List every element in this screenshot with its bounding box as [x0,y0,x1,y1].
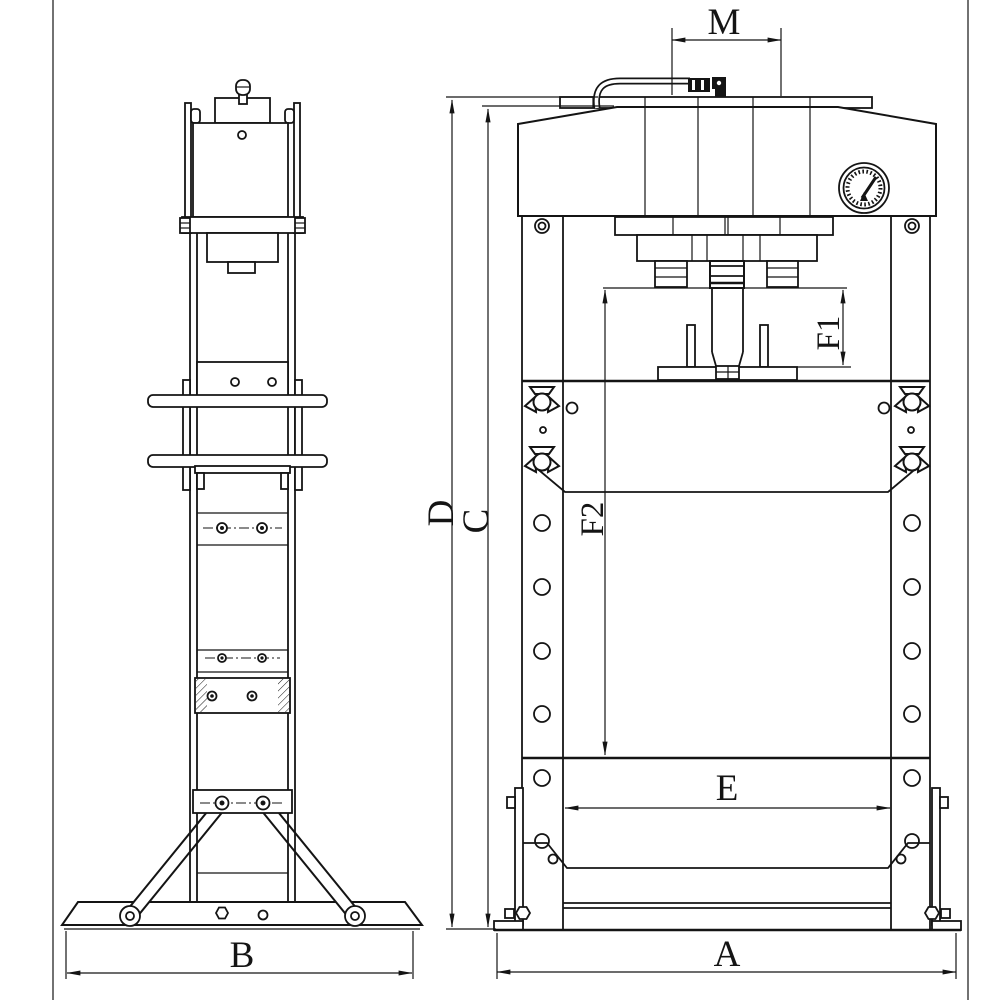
base-hole [259,911,268,920]
side-view [62,80,422,929]
dim-label-b: B [230,935,255,976]
dim-label-e: E [716,768,739,809]
dimension-a: A [497,933,956,979]
wing-pin [525,447,559,472]
cylinder-stack [615,217,833,288]
rail-tab-right [285,109,294,123]
table-edge [195,466,290,473]
pump-body-hole [238,131,246,139]
cylinder-neck-side [228,262,255,273]
wing-pin [895,387,929,412]
dim-label-c: C [456,509,497,534]
dim-label-f2: F2 [575,502,611,537]
base-hex-bolt [216,908,228,919]
pivot-plate [193,790,292,813]
floor-bracket-left [494,788,530,930]
dim-label-a: A [714,934,741,975]
work-table [522,381,930,492]
dimension-e: E [565,768,890,809]
drawing-sheet: M D C F1 F2 E A B [0,0,1000,1000]
hose-elbow-fitting [712,77,726,97]
cylinder-side [207,233,278,262]
press-technical-drawing: M D C F1 F2 E A B [0,0,1000,1000]
column-holes [534,515,920,864]
dimension-f1: F1 [797,290,851,367]
rail-left [185,103,191,233]
front-columns [522,216,930,930]
dimension-f2: F2 [575,290,611,755]
rail-right [294,103,300,233]
wing-pin [525,387,559,412]
dimension-b: B [66,931,413,979]
dim-label-f1: F1 [811,316,847,351]
support-pin-upper [148,395,327,407]
pressure-gauge [839,163,889,213]
cross-plate [182,217,303,233]
wing-pin [895,447,929,472]
base-plate [62,902,422,925]
rail-tab-left [191,109,200,123]
dim-label-m: M [708,2,741,43]
ram-and-adapter [658,288,797,380]
